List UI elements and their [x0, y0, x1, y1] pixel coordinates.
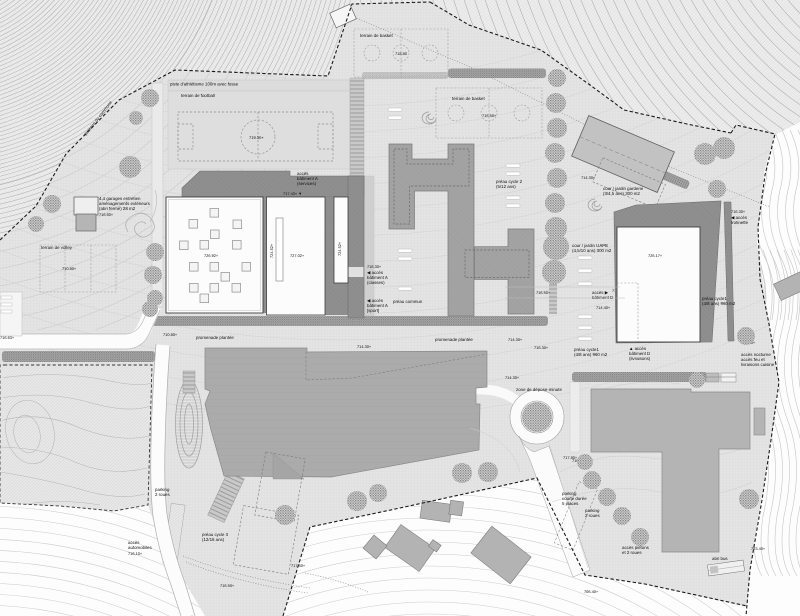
svg-text:706.40+: 706.40+ [584, 589, 599, 594]
svg-text:(3/4,5 ans) 300 m2: (3/4,5 ans) 300 m2 [603, 191, 640, 196]
svg-text:724.52+: 724.52+ [269, 243, 274, 258]
svg-text:714.30+: 714.30+ [357, 344, 372, 349]
svg-text:livraisons cuisine: livraisons cuisine [741, 362, 775, 367]
svg-text:(abri fermé) 28 m2: (abri fermé) 28 m2 [99, 206, 136, 211]
svg-text:abri bus: abri bus [712, 556, 728, 561]
svg-text:727.02+: 727.02+ [290, 253, 305, 258]
svg-text:(services): (services) [297, 181, 317, 186]
svg-text:716.50+: 716.50+ [482, 113, 497, 118]
svg-text:718.80: 718.80 [395, 51, 408, 56]
svg-text:2 roues: 2 roues [155, 492, 170, 497]
svg-text:716.63+: 716.63+ [0, 335, 15, 340]
svg-text:716.10+: 716.10+ [128, 551, 143, 556]
svg-text:et 2 roues: et 2 roues [622, 550, 642, 555]
svg-text:(4/8 ans) 960 m2: (4/8 ans) 960 m2 [574, 352, 608, 357]
svg-text:2 roues: 2 roues [585, 513, 600, 518]
svg-text:(5/12 ans): (5/12 ans) [496, 184, 516, 189]
svg-text:(classes): (classes) [367, 280, 385, 285]
svg-text:préau commun: préau commun [393, 299, 423, 304]
svg-text:716.50+: 716.50+ [220, 583, 235, 588]
svg-text:terrain de volley: terrain de volley [41, 245, 73, 250]
svg-text:714.30+: 714.30+ [581, 175, 596, 180]
svg-text:promenade plantée: promenade plantée [435, 337, 473, 342]
svg-text:terrain de basket: terrain de basket [452, 96, 485, 101]
svg-text:716.60+: 716.60+ [99, 212, 114, 217]
svg-text:zone de dépose-minute: zone de dépose-minute [516, 387, 562, 392]
svg-text:724.52+: 724.52+ [337, 241, 342, 256]
svg-text:726.17+: 726.17+ [648, 253, 663, 258]
svg-text:trotinette: trotinette [731, 220, 749, 225]
svg-text:716.30+: 716.30+ [731, 209, 746, 214]
svg-text:bâtiment D: bâtiment D [592, 295, 613, 300]
svg-text:promenade plantée: promenade plantée [196, 335, 234, 340]
svg-text:710.80+: 710.80+ [62, 266, 77, 271]
svg-text:716.50+: 716.50+ [536, 290, 551, 295]
svg-text:(12/16 ans): (12/16 ans) [202, 537, 225, 542]
svg-text:(4/8 ans) 960 m2: (4/8 ans) 960 m2 [702, 301, 736, 306]
svg-text:719.30+: 719.30+ [249, 135, 264, 140]
svg-text:(4,5/10 ans) 300 m2: (4,5/10 ans) 300 m2 [572, 248, 612, 253]
svg-text:717.43+ ▼: 717.43+ ▼ [283, 191, 302, 196]
svg-text:[sport]: [sport] [367, 308, 379, 313]
svg-text:714.30+: 714.30+ [505, 375, 520, 380]
svg-text:(livraisons): (livraisons) [629, 356, 651, 361]
svg-text:714.30+: 714.30+ [508, 337, 523, 342]
svg-text:piste d'athlétisme 100m avec f: piste d'athlétisme 100m avec fosse [170, 82, 239, 87]
svg-text:716.30+: 716.30+ [367, 264, 382, 269]
svg-text:714.40+: 714.40+ [596, 305, 611, 310]
svg-text:terrain de football: terrain de football [181, 93, 215, 98]
svg-text:716.30+: 716.30+ [534, 345, 549, 350]
svg-text:5 places: 5 places [562, 501, 579, 506]
svg-text:726.92+: 726.92+ [204, 253, 219, 258]
svg-text:automobiles: automobiles [128, 545, 152, 550]
svg-text:terrain de basket: terrain de basket [360, 33, 393, 38]
svg-text:710.80+: 710.80+ [163, 332, 178, 337]
